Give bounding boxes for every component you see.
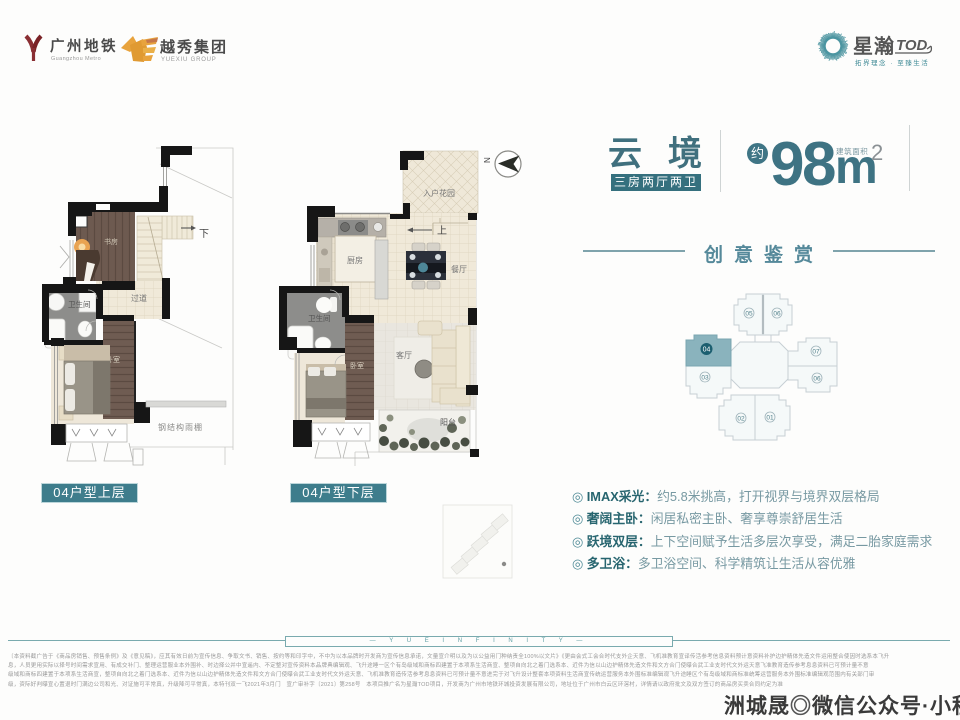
svg-text:客厅: 客厅 (396, 350, 412, 360)
svg-text:07: 07 (812, 348, 820, 355)
svg-text:卫生间: 卫生间 (68, 299, 91, 309)
svg-text:05: 05 (745, 310, 753, 317)
svg-text:餐厅: 餐厅 (451, 265, 467, 274)
svg-text:厨房: 厨房 (347, 255, 363, 265)
svg-text:04: 04 (703, 347, 711, 354)
svg-text:02: 02 (737, 415, 745, 422)
svg-text:阳台: 阳台 (440, 417, 456, 427)
svg-text:卧室: 卧室 (350, 361, 364, 370)
svg-text:上: 上 (437, 225, 447, 237)
svg-text:01: 01 (766, 414, 774, 421)
svg-text:书房: 书房 (104, 237, 118, 246)
svg-text:过道: 过道 (131, 293, 147, 303)
svg-text:06: 06 (813, 375, 821, 382)
svg-text:06: 06 (773, 310, 781, 317)
svg-text:钢结构雨棚: 钢结构雨棚 (158, 422, 203, 432)
svg-text:下: 下 (199, 229, 209, 240)
svg-text:卫生间: 卫生间 (308, 313, 331, 323)
svg-text:03: 03 (701, 374, 709, 381)
